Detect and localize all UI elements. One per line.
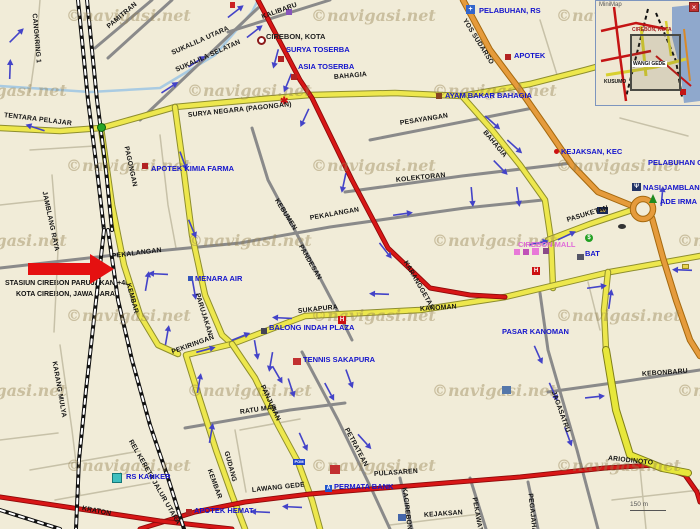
close-icon[interactable]: ×: [689, 2, 699, 12]
minimap-label: WANGI GEDE: [632, 61, 667, 67]
minimap-label: CIREBON, KOTA: [632, 27, 672, 33]
minimap[interactable]: MiniMap × CIREBON, KOTAWANGI GEDEKUSUMO: [595, 0, 700, 106]
minimap-label: KUSUMO: [604, 79, 626, 85]
map-canvas[interactable]: ©navigasi.net©navigasi.net©navigasi.net©…: [0, 0, 700, 529]
minimap-title: MiniMap: [599, 2, 622, 8]
